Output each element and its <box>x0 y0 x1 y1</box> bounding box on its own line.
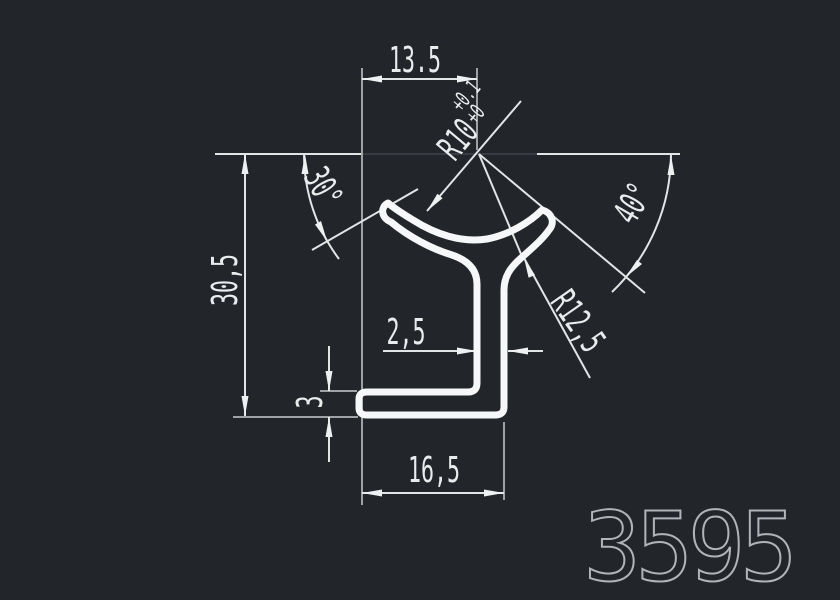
dim-height-label: 30,5 <box>208 254 244 306</box>
dim-bottom-width-label: 16,5 <box>408 453 460 489</box>
part-number: 3595 <box>584 493 793 600</box>
dim-foot-height-label: 3 <box>293 395 329 408</box>
dim-top-width-label: 13.5 <box>389 43 441 79</box>
cad-linework: 3595 <box>0 0 840 600</box>
dim-wall-label: 2,5 <box>386 315 425 351</box>
profile-outline <box>359 203 552 415</box>
drawing-canvas: 3595 13.5 30,5 2,5 3 16,5 30° 40° R12,5 … <box>0 0 840 600</box>
